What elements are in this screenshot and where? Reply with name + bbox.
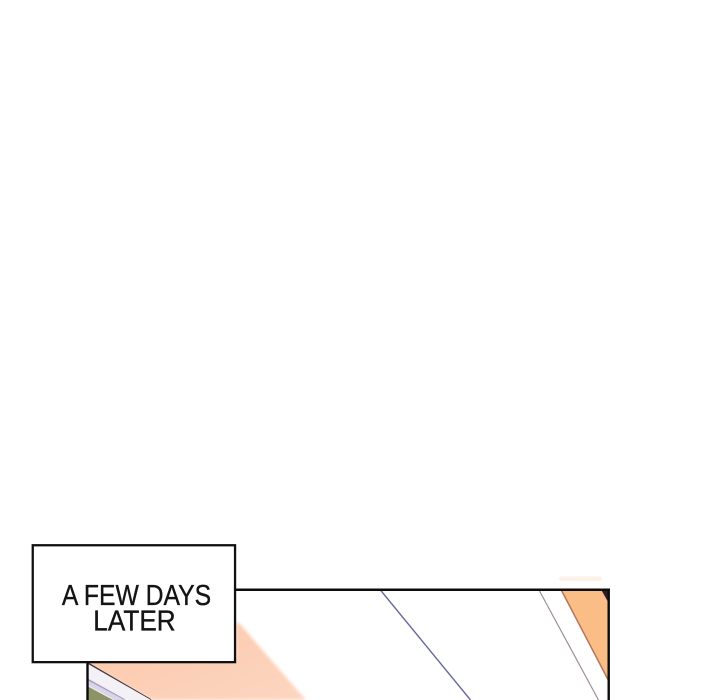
svg-text:LATER: LATER	[93, 604, 175, 637]
